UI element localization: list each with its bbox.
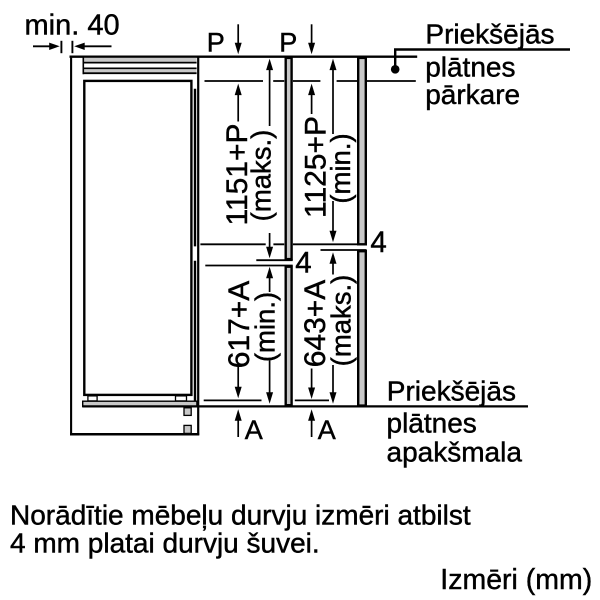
svg-text:(min.): (min.): [325, 133, 356, 203]
svg-text:4: 4: [370, 226, 386, 259]
svg-text:plātnes: plātnes: [387, 408, 477, 439]
svg-text:Norādītie mēbeļu durvju izmēri: Norādītie mēbeļu durvju izmēri atbilst: [10, 500, 471, 531]
svg-text:(maks.): (maks.): [246, 130, 277, 222]
svg-text:A: A: [245, 415, 263, 445]
svg-text:plātnes: plātnes: [425, 51, 515, 82]
svg-text:P: P: [207, 27, 225, 57]
svg-text:4: 4: [295, 247, 311, 280]
svg-text:apakšmala: apakšmala: [387, 437, 523, 468]
svg-text:(maks.): (maks.): [325, 275, 356, 367]
svg-text:(min.): (min.): [249, 292, 280, 362]
svg-text:Izmēri (mm): Izmēri (mm): [440, 564, 592, 596]
svg-text:pārkare: pārkare: [425, 79, 520, 110]
svg-text:4 mm platai durvju šuvei.: 4 mm platai durvju šuvei.: [10, 527, 320, 558]
svg-text:A: A: [318, 415, 336, 445]
svg-text:min. 40: min. 40: [25, 10, 120, 42]
svg-text:Priekšējās: Priekšējās: [387, 376, 516, 407]
svg-text:P: P: [279, 27, 297, 57]
svg-text:Priekšējās: Priekšējās: [425, 19, 554, 50]
